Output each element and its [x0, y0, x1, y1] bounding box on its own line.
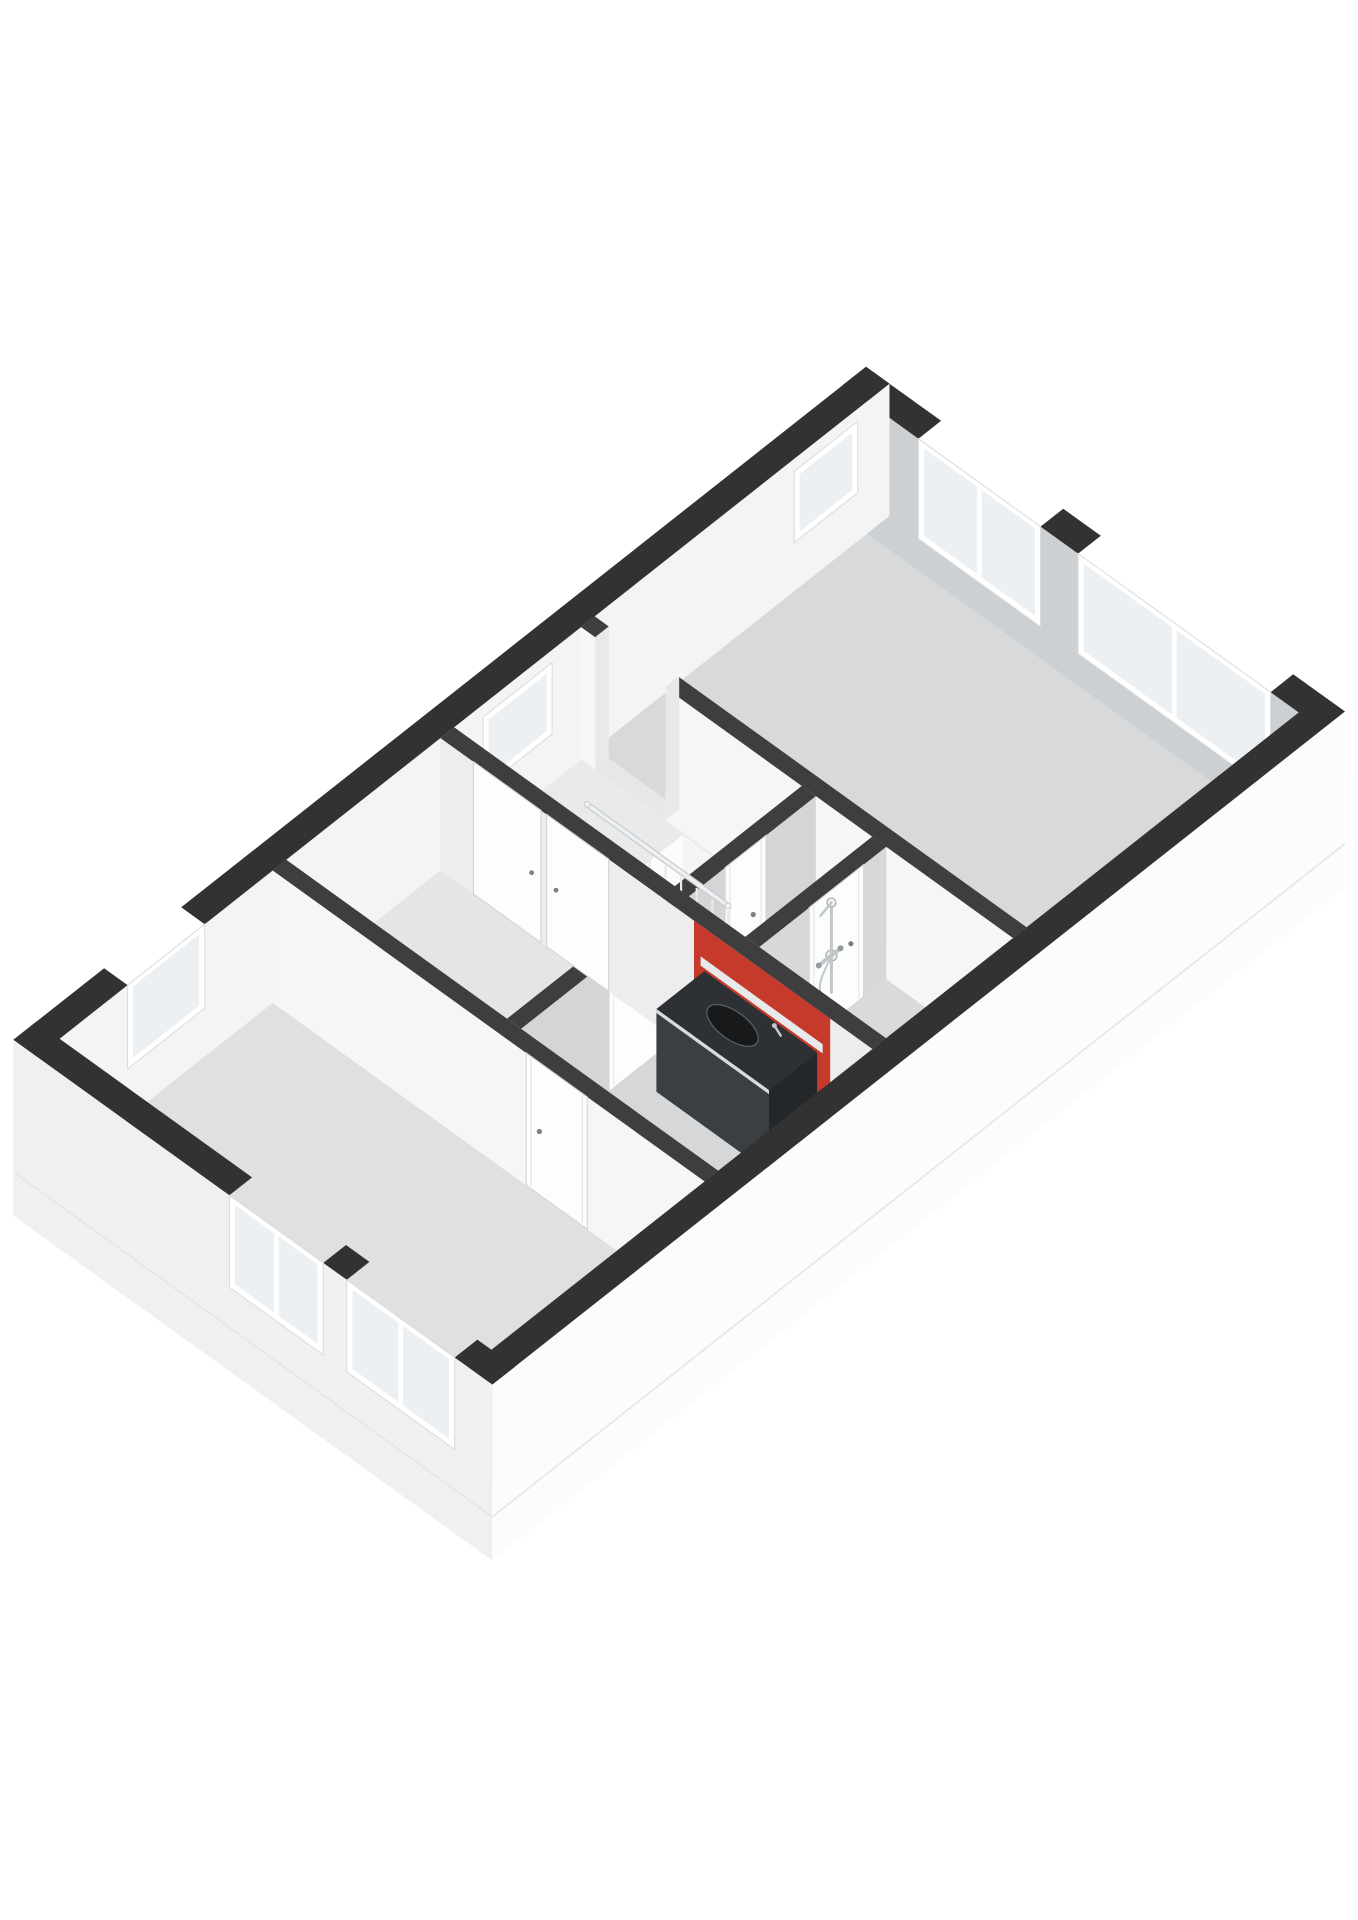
floorplan-3d-render: [0, 0, 1358, 1920]
floorplan-page: [0, 0, 1358, 1920]
